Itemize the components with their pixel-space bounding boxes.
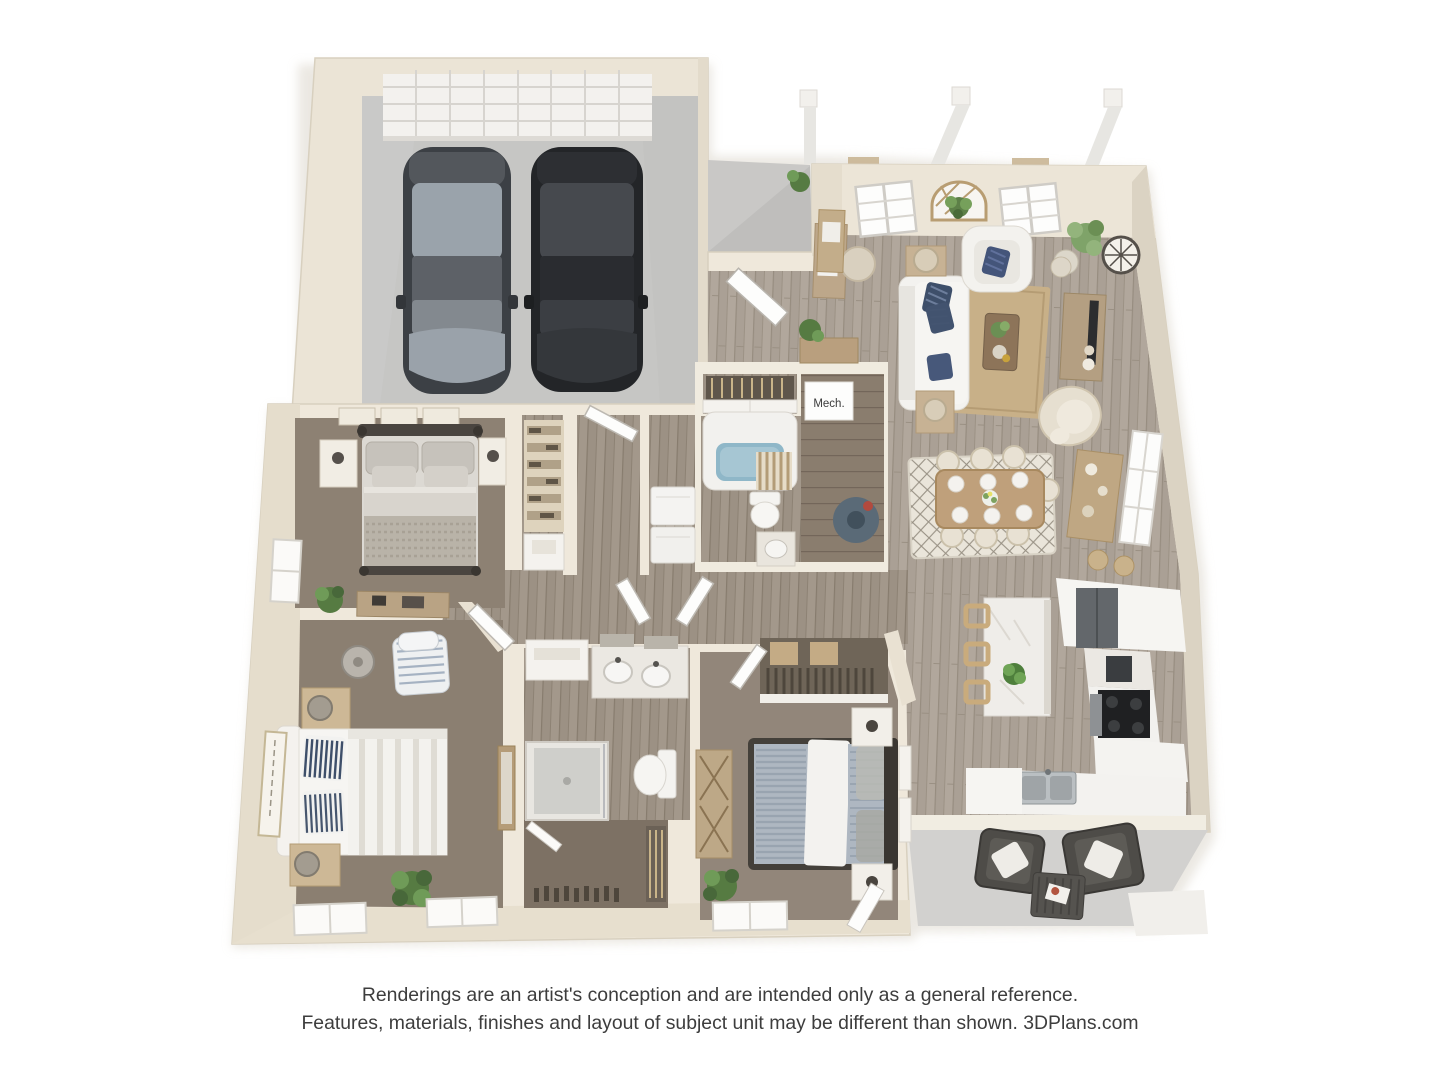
svg-text:Mech.: Mech. (813, 398, 844, 410)
